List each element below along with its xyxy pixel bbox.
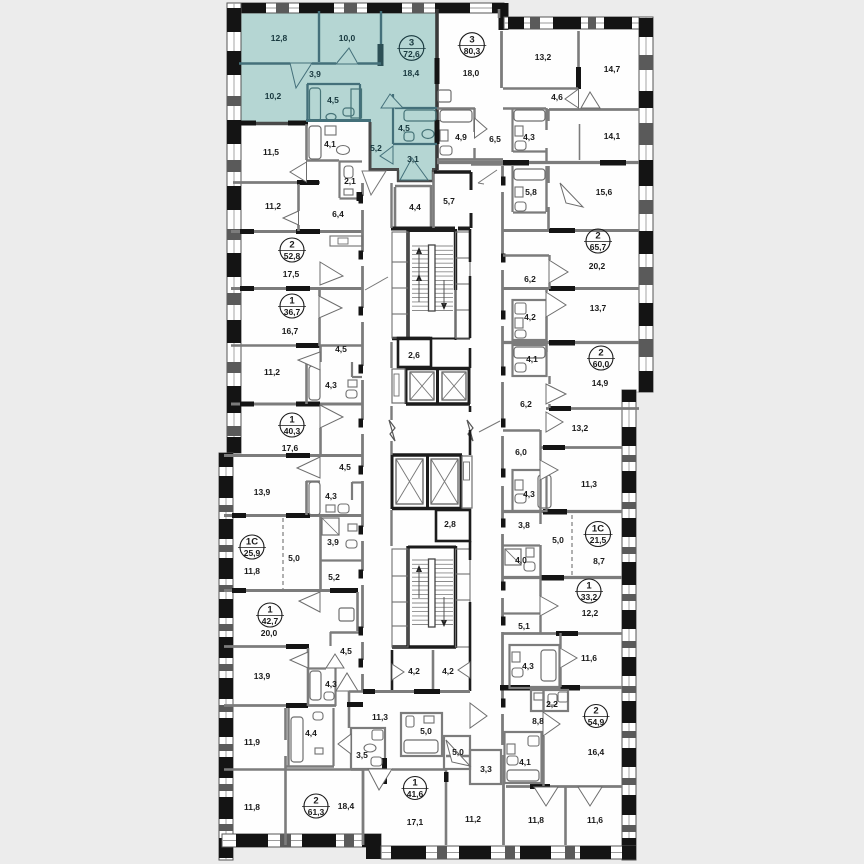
svg-text:54,9: 54,9 (588, 717, 605, 727)
svg-text:5,2: 5,2 (370, 143, 382, 153)
svg-text:3,1: 3,1 (407, 154, 419, 164)
svg-text:13,9: 13,9 (254, 487, 271, 497)
svg-text:1: 1 (412, 778, 418, 789)
svg-text:5,1: 5,1 (518, 621, 530, 631)
svg-text:10,2: 10,2 (265, 91, 282, 101)
svg-text:11,8: 11,8 (528, 815, 544, 825)
svg-text:1: 1 (289, 415, 295, 426)
svg-text:21,5: 21,5 (590, 535, 607, 545)
svg-text:4,0: 4,0 (515, 555, 527, 565)
svg-text:14,7: 14,7 (604, 64, 621, 74)
svg-text:18,4: 18,4 (338, 801, 355, 811)
svg-text:25,9: 25,9 (244, 548, 261, 558)
svg-text:61,3: 61,3 (308, 807, 325, 817)
svg-text:10,0: 10,0 (339, 33, 356, 43)
svg-text:1C: 1C (246, 537, 258, 548)
svg-text:4,5: 4,5 (335, 344, 347, 354)
svg-text:72,6: 72,6 (403, 49, 420, 59)
svg-text:4,4: 4,4 (305, 728, 317, 738)
svg-text:11,3: 11,3 (372, 712, 388, 722)
svg-text:5,0: 5,0 (452, 747, 464, 757)
svg-text:4,5: 4,5 (339, 462, 351, 472)
svg-text:3,9: 3,9 (309, 69, 321, 79)
svg-text:11,8: 11,8 (244, 566, 260, 576)
svg-text:6,0: 6,0 (515, 447, 527, 457)
svg-text:5,7: 5,7 (443, 196, 455, 206)
svg-text:65,7: 65,7 (590, 242, 607, 252)
svg-text:2: 2 (289, 240, 294, 251)
svg-text:4,1: 4,1 (526, 354, 538, 364)
svg-text:2: 2 (593, 706, 598, 717)
svg-text:80,3: 80,3 (464, 46, 481, 56)
svg-text:11,3: 11,3 (581, 479, 597, 489)
svg-text:4,3: 4,3 (325, 491, 337, 501)
svg-text:1: 1 (586, 581, 592, 592)
svg-text:17,6: 17,6 (282, 443, 299, 453)
svg-text:2,2: 2,2 (546, 699, 558, 709)
svg-text:11,8: 11,8 (244, 802, 260, 812)
svg-text:3,5: 3,5 (356, 750, 368, 760)
svg-text:4,4: 4,4 (409, 202, 421, 212)
svg-text:4,3: 4,3 (522, 661, 534, 671)
svg-text:20,0: 20,0 (261, 628, 278, 638)
svg-text:5,0: 5,0 (420, 726, 432, 736)
svg-text:52,8: 52,8 (284, 251, 301, 261)
svg-text:2,6: 2,6 (408, 350, 420, 360)
svg-text:14,9: 14,9 (592, 378, 609, 388)
svg-text:5,0: 5,0 (552, 535, 564, 545)
svg-text:36,7: 36,7 (284, 307, 301, 317)
svg-text:14,1: 14,1 (604, 131, 621, 141)
svg-text:5,0: 5,0 (288, 553, 300, 563)
svg-text:15,6: 15,6 (596, 187, 613, 197)
svg-text:17,1: 17,1 (407, 817, 424, 827)
svg-text:2,1: 2,1 (344, 176, 356, 186)
svg-text:11,5: 11,5 (263, 147, 279, 157)
svg-text:4,5: 4,5 (327, 95, 339, 105)
svg-text:2: 2 (598, 348, 603, 359)
svg-text:8,7: 8,7 (593, 556, 605, 566)
svg-text:3: 3 (409, 38, 414, 49)
svg-text:6,4: 6,4 (332, 209, 344, 219)
svg-text:13,2: 13,2 (572, 423, 589, 433)
svg-text:11,2: 11,2 (265, 201, 281, 211)
svg-text:13,7: 13,7 (590, 303, 607, 313)
svg-text:42,7: 42,7 (262, 616, 279, 626)
svg-text:17,5: 17,5 (283, 269, 300, 279)
svg-text:2: 2 (595, 231, 600, 242)
svg-text:3,3: 3,3 (480, 764, 492, 774)
svg-text:4,5: 4,5 (398, 123, 410, 133)
svg-text:5,2: 5,2 (328, 572, 340, 582)
svg-text:3,8: 3,8 (518, 520, 530, 530)
svg-text:11,6: 11,6 (587, 815, 603, 825)
svg-text:33,2: 33,2 (581, 592, 598, 602)
svg-text:4,1: 4,1 (519, 757, 531, 767)
svg-text:4,3: 4,3 (523, 132, 535, 142)
svg-text:8,8: 8,8 (532, 716, 544, 726)
svg-text:18,0: 18,0 (463, 68, 480, 78)
svg-text:4,5: 4,5 (340, 646, 352, 656)
svg-text:11,2: 11,2 (264, 367, 280, 377)
svg-text:3,9: 3,9 (327, 537, 339, 547)
svg-text:2,8: 2,8 (444, 519, 456, 529)
svg-text:6,2: 6,2 (520, 399, 532, 409)
svg-text:4,3: 4,3 (325, 380, 337, 390)
svg-text:6,5: 6,5 (489, 134, 501, 144)
svg-text:60,0: 60,0 (593, 359, 610, 369)
svg-text:16,7: 16,7 (282, 326, 299, 336)
svg-text:4,2: 4,2 (408, 666, 420, 676)
svg-text:13,2: 13,2 (535, 52, 552, 62)
svg-text:4,9: 4,9 (455, 132, 467, 142)
svg-text:4,3: 4,3 (523, 489, 535, 499)
svg-text:12,2: 12,2 (582, 608, 599, 618)
svg-text:4,2: 4,2 (524, 312, 536, 322)
svg-text:20,2: 20,2 (589, 261, 606, 271)
svg-text:11,2: 11,2 (465, 814, 481, 824)
svg-text:4,2: 4,2 (442, 666, 454, 676)
svg-text:11,6: 11,6 (581, 653, 597, 663)
svg-text:2: 2 (313, 796, 318, 807)
svg-text:3: 3 (469, 35, 474, 46)
svg-text:1: 1 (267, 605, 273, 616)
svg-text:4,6: 4,6 (551, 92, 563, 102)
svg-text:5,8: 5,8 (525, 187, 537, 197)
svg-text:11,9: 11,9 (244, 737, 260, 747)
svg-text:41,6: 41,6 (407, 789, 424, 799)
svg-text:13,9: 13,9 (254, 671, 271, 681)
svg-text:16,4: 16,4 (588, 747, 605, 757)
svg-text:18,4: 18,4 (403, 68, 420, 78)
svg-text:4,1: 4,1 (324, 139, 336, 149)
svg-text:6,2: 6,2 (524, 274, 536, 284)
svg-text:12,8: 12,8 (271, 33, 288, 43)
svg-text:40,3: 40,3 (284, 426, 301, 436)
svg-text:1: 1 (289, 296, 295, 307)
svg-text:1C: 1C (592, 524, 604, 535)
svg-text:4,3: 4,3 (325, 679, 337, 689)
